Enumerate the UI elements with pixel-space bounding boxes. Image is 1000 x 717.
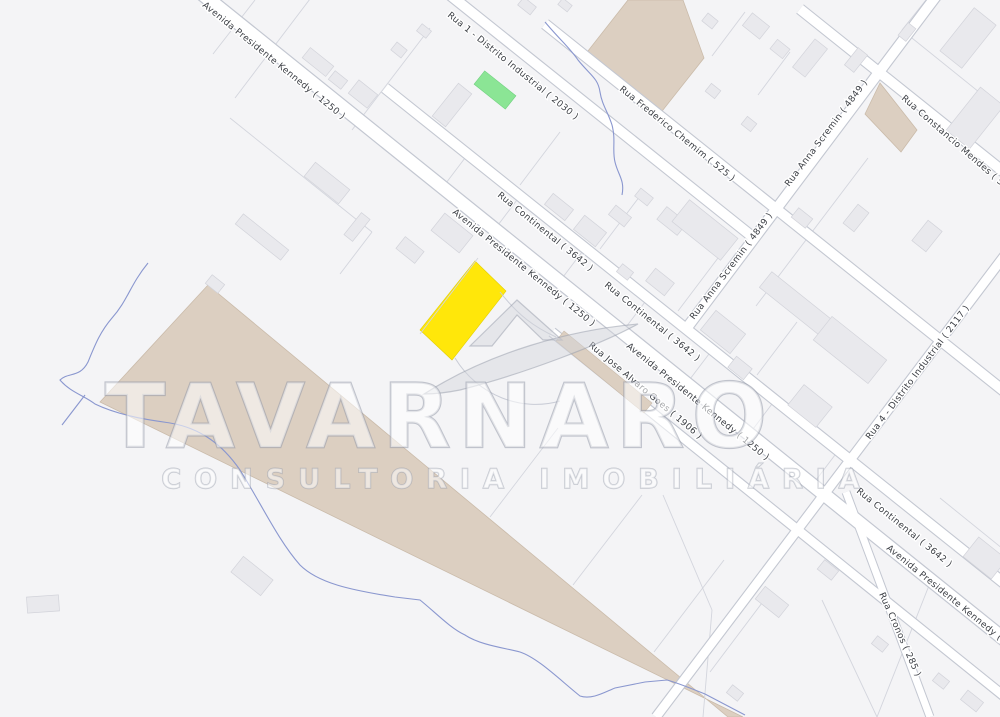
- map-svg: Avenida Presidente Kennedy ( 1250 ) Aven…: [0, 0, 1000, 717]
- watermark-brand: TAVARNARO: [105, 365, 775, 468]
- map-canvas: Avenida Presidente Kennedy ( 1250 ) Aven…: [0, 0, 1000, 717]
- watermark-tagline: CONSULTORIA IMOBILIÁRIA: [161, 463, 872, 495]
